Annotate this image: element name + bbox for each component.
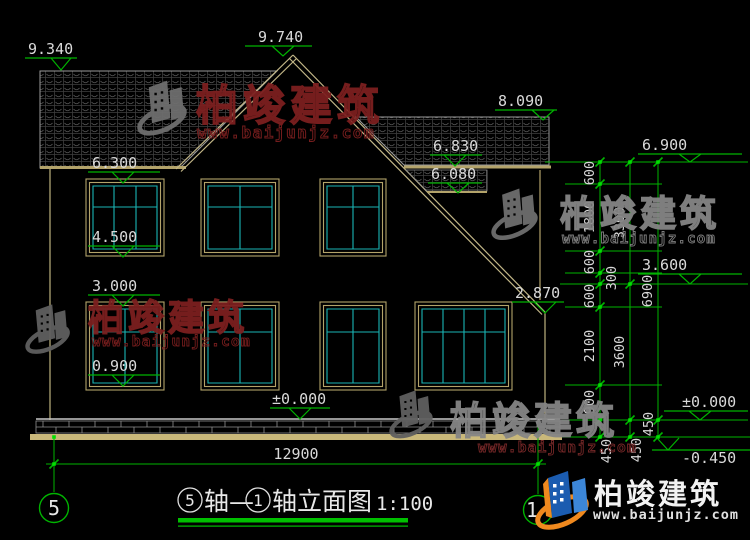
watermark-logo-icon	[388, 391, 434, 441]
elev-symbol-ground-center	[270, 408, 330, 419]
title-underline-thick	[178, 518, 408, 523]
watermark-url-text: www.baijunjz.com	[562, 231, 716, 247]
dim-label: 600	[582, 284, 598, 308]
cad-elevation-drawing: 600 1800 600 300 600 2100 900 450 3300 3…	[0, 0, 750, 540]
logo-building-side	[572, 478, 588, 513]
logo-building-main	[548, 471, 572, 518]
dim-label: 2100	[582, 330, 598, 363]
elev-symbol-floor2-top	[88, 172, 160, 183]
elev-label-floor2-sill: 4.500	[92, 228, 137, 246]
elev-label-mid-right: 3.600	[642, 256, 687, 274]
drawing-surface: 600 1800 600 300 600 2100 900 450 3300 3…	[0, 0, 750, 540]
watermark-url-text: www.baijunjz.com	[197, 123, 375, 142]
total-width-dimension: 12900	[273, 445, 318, 463]
footer-logo-url: www.baijunjz.com	[593, 507, 739, 523]
footer-logo-brand: 柏竣建筑	[594, 477, 722, 511]
elev-symbol-eave-right	[638, 154, 742, 162]
window-1f-wide	[415, 302, 512, 390]
window-frames	[86, 179, 512, 390]
elev-label-floor1-sill: 0.900	[92, 357, 137, 375]
dim-label: 600	[582, 161, 598, 185]
elev-label-right-eave: 6.830	[433, 137, 478, 155]
watermark-upper-right: 柏竣建筑 www.baijunjz.com	[490, 189, 720, 247]
elev-label-ground-center: ±0.000	[272, 390, 326, 408]
elev-symbol-left-ridge	[25, 58, 77, 70]
elev-label-eave-right: 6.900	[642, 136, 687, 154]
title-suffix: 轴立面图	[272, 487, 372, 516]
elev-label-right-soffit: 6.080	[431, 165, 476, 183]
elev-label-floor1-top: 3.000	[92, 277, 137, 295]
title-scale: 1:100	[376, 493, 433, 515]
title-bubble-right-number: 1	[253, 491, 263, 510]
elev-label-footing-right: -0.450	[682, 449, 736, 467]
dim-label: 600	[582, 250, 598, 274]
elev-symbol-slope-end	[512, 302, 564, 313]
watermark-brand-text: 柏竣建筑	[560, 194, 720, 235]
dim-label: 6900	[640, 275, 656, 308]
watermark-brand-text: 柏竣建筑	[450, 399, 618, 443]
watermark-logo-icon	[24, 305, 71, 357]
elev-label-peak: 9.740	[258, 28, 303, 46]
elev-symbol-ground-right	[664, 411, 748, 420]
elev-symbol-floor1-sill	[88, 375, 160, 386]
elev-label-right-ridge: 8.090	[498, 92, 543, 110]
elev-label-slope-end: 2.870	[515, 284, 560, 302]
axis-bubble-left-number: 5	[48, 496, 60, 520]
dim-label: 3600	[612, 336, 628, 369]
dim-label: 300	[604, 266, 620, 290]
watermark-url-text: www.baijunjz.com	[478, 440, 637, 456]
watermark-brand-text: 柏竣建筑	[88, 298, 248, 339]
window-1f-3	[320, 302, 386, 390]
title-underline-thin	[178, 526, 408, 527]
window-2f-3	[320, 179, 386, 256]
watermark-mid-left: 柏竣建筑 www.baijunjz.com	[24, 298, 251, 357]
watermark-mid-right: 柏竣建筑 www.baijunjz.com	[388, 391, 637, 456]
footer-logo: 柏竣建筑 www.baijunjz.com	[533, 471, 739, 534]
title-bubble-left-number: 5	[185, 491, 195, 510]
elev-symbol-floor2-sill	[88, 246, 160, 257]
dim-label: 450	[641, 412, 657, 436]
watermark-logo-icon	[490, 189, 539, 243]
elev-label-left-ridge: 9.340	[28, 40, 73, 58]
drawing-title: 5 轴— 1 轴立面图 1:100	[178, 487, 433, 527]
window-2f-2	[201, 179, 279, 256]
elev-symbol-peak	[245, 46, 312, 56]
elev-label-ground-right: ±0.000	[682, 393, 736, 411]
watermark-url-text: www.baijunjz.com	[92, 334, 251, 350]
elev-label-floor2-top: 6.300	[92, 154, 137, 172]
